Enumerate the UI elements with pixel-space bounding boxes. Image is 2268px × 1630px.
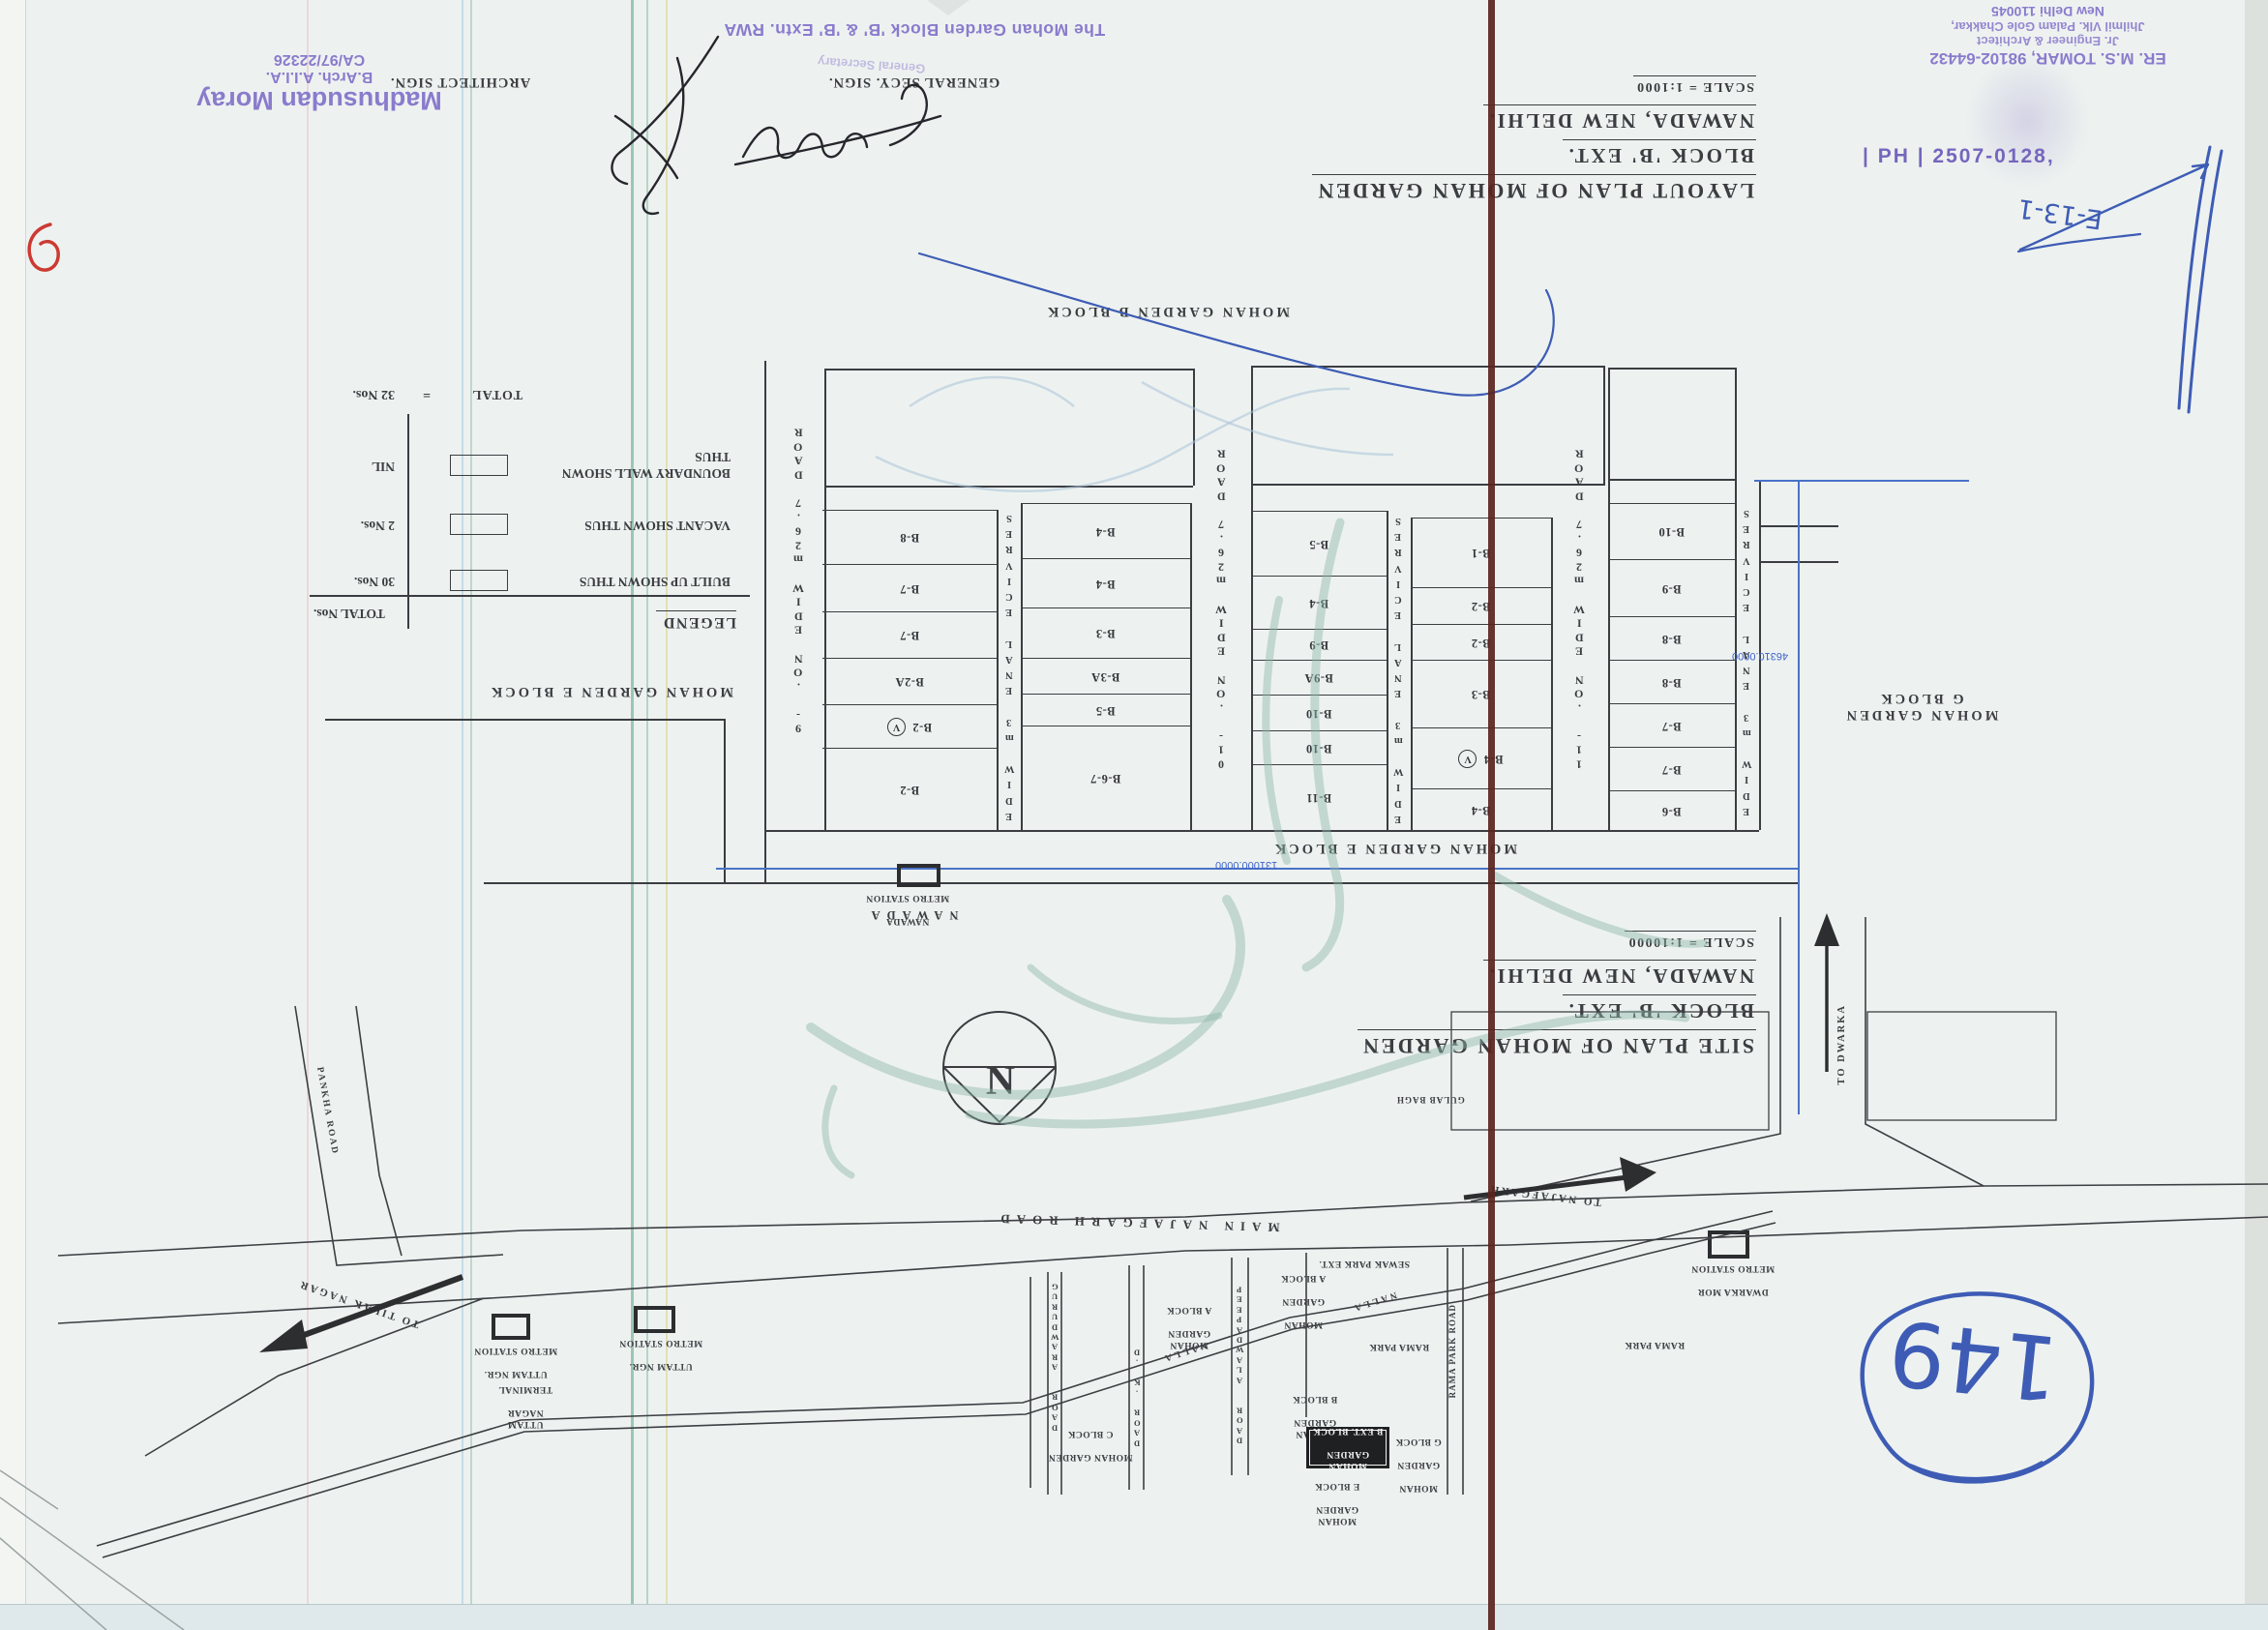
fold-line-brown [1488,0,1495,1630]
architect-signature [612,37,718,214]
annotation-layer [0,0,2268,1630]
scanned-plan-sheet: 131000.0000 46310.0000 B-8B-7B-7B-2AB-2V… [0,0,2268,1630]
pen-strokes [919,147,2222,1481]
pencil-scribble [876,377,1393,491]
torn-corner [0,1470,184,1630]
red-mark [29,224,58,270]
secy-signature [735,85,940,164]
page-number-circle [1863,1293,2092,1481]
marker-scrawl [811,522,1705,1175]
